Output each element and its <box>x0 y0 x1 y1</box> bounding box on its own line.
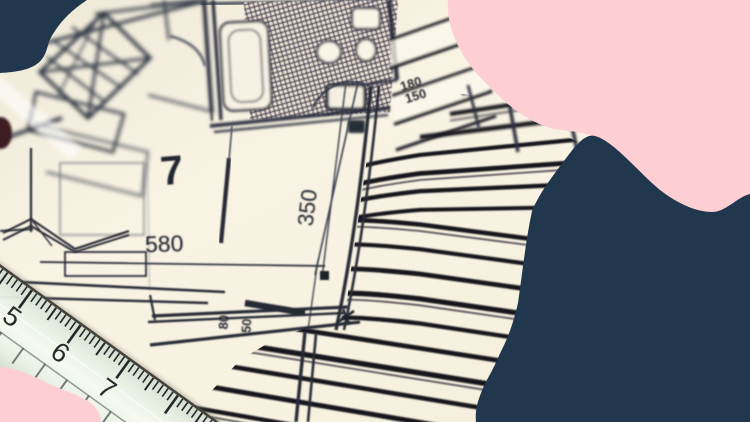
svg-text:580: 580 <box>145 230 184 257</box>
svg-text:80: 80 <box>216 314 232 329</box>
svg-text:50: 50 <box>238 318 254 333</box>
svg-text:7: 7 <box>158 146 185 194</box>
svg-text:350: 350 <box>293 188 322 227</box>
